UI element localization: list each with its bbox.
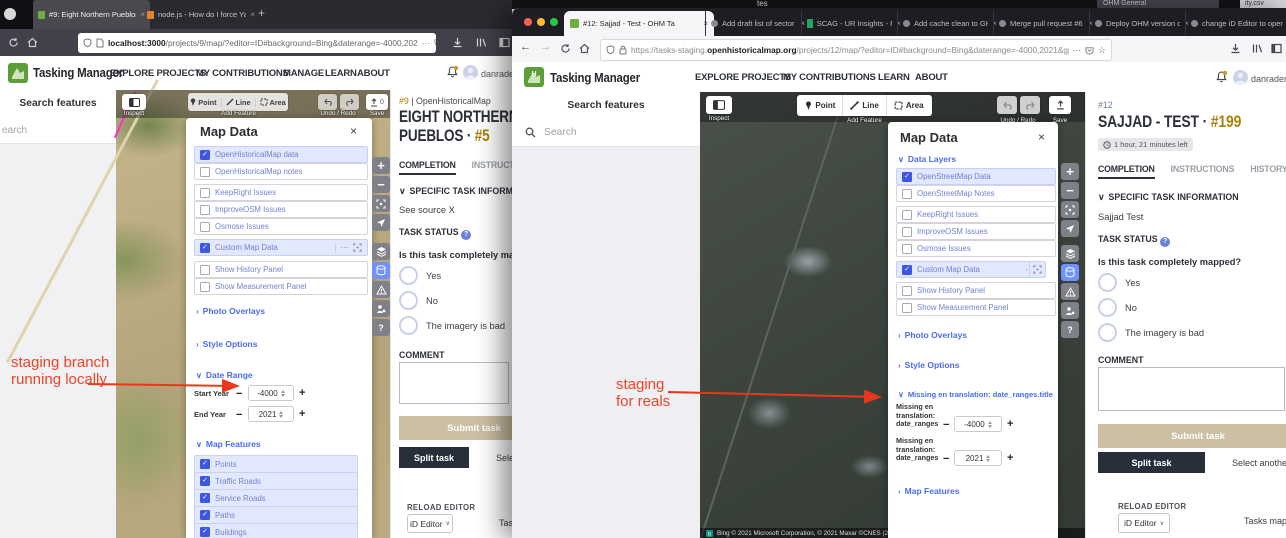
style-options-section[interactable]: ›Style Options: [196, 339, 257, 349]
annotation-left: staging branchrunning locally: [11, 355, 109, 388]
download-icon[interactable]: [452, 37, 463, 48]
checkbox-icon[interactable]: [200, 205, 210, 215]
issues-button[interactable]: [372, 281, 390, 298]
layer-row[interactable]: OpenStreetMap Notes: [896, 185, 1056, 202]
url-host: localhost:3000: [108, 38, 166, 48]
right-url-bar: ← → https://tasks-staging.openhistorical…: [512, 36, 1286, 63]
inspect-icon: [713, 100, 725, 110]
right-task-panel: #12 SAJJAD - TEST · #199 1 hour, 21 minu…: [1085, 92, 1286, 538]
pocket-icon[interactable]: [1085, 46, 1094, 55]
nav-learn[interactable]: LEARN: [325, 68, 357, 79]
right-id-toolbar: Inspect Point Line Area Add Feature Undo…: [700, 92, 1085, 122]
bell-icon[interactable]: [446, 65, 459, 79]
layer-row[interactable]: KeepRight Issues: [896, 206, 1056, 223]
inspect-button[interactable]: [706, 96, 732, 114]
end-year-input[interactable]: 2021: [954, 450, 1002, 466]
comment-textarea[interactable]: [399, 362, 509, 404]
comment-textarea[interactable]: [1098, 367, 1285, 411]
new-tab-icon[interactable]: +: [258, 6, 265, 20]
checkbox-checked-icon[interactable]: [200, 527, 210, 537]
redo-icon: [1025, 101, 1036, 110]
search-features-title: Search features: [567, 100, 644, 111]
undo-redo-label: Undo / Redo: [312, 110, 364, 117]
feature-row[interactable]: Traffic Roads: [195, 473, 357, 490]
stepper-icon[interactable]: [279, 411, 283, 418]
layer-row[interactable]: Osmose Issues: [194, 218, 368, 235]
github-favicon: [903, 20, 910, 27]
inspect-button[interactable]: [122, 94, 146, 110]
feature-row[interactable]: Service Roads: [195, 490, 357, 507]
radio-icon[interactable]: [399, 291, 418, 310]
submit-task-button[interactable]: Submit task: [399, 416, 512, 440]
help-circle-icon[interactable]: ?: [1160, 237, 1170, 247]
area-icon: [894, 101, 903, 110]
task-tabs: COMPLETION INSTRUCTIONS: [399, 160, 512, 175]
search-features-title: Search features: [19, 98, 96, 109]
undo-icon: [1002, 101, 1013, 110]
browser-tab[interactable]: Add cache clean to GH Acti ×: [897, 11, 1002, 36]
zoom-in-button[interactable]: +: [372, 157, 390, 174]
checkbox-icon[interactable]: [902, 286, 912, 296]
save-upload-icon: [370, 98, 378, 107]
zoom-to-task-button[interactable]: [372, 195, 390, 212]
attribution-text: Bing © 2021 Microsoft Corporation, © 202…: [717, 530, 901, 537]
area-button[interactable]: Area: [887, 95, 931, 116]
radio-icon[interactable]: [1098, 323, 1117, 342]
address-bar[interactable]: https://tasks-staging.openhistoricalmap.…: [600, 39, 1112, 61]
nav-about[interactable]: ABOUT: [357, 68, 390, 79]
line-icon: [850, 101, 859, 110]
comment-label: COMMENT: [399, 350, 444, 360]
option-no[interactable]: No: [1098, 298, 1137, 317]
preferences-button[interactable]: [1061, 302, 1079, 319]
tab-title: Add cache clean to GH Acti: [914, 19, 988, 28]
shield-icon[interactable]: [606, 45, 615, 55]
overflow-menu-icon[interactable]: ⋯: [422, 38, 430, 48]
preferences-button[interactable]: [372, 300, 390, 317]
warning-icon: [1065, 287, 1076, 297]
back-icon[interactable]: ←: [520, 41, 531, 53]
checkbox-icon[interactable]: [200, 265, 210, 275]
checkbox-icon[interactable]: [200, 167, 210, 177]
layer-row[interactable]: OpenHistoricalMap data: [194, 146, 368, 163]
point-icon: [190, 98, 196, 106]
specific-task-info-header[interactable]: ∨SPECIFIC TASK INFORMATION: [399, 186, 512, 197]
left-url-bar: localhost:3000/projects/9/map/?editor=ID…: [0, 29, 512, 56]
start-year-minus[interactable]: −: [236, 389, 242, 399]
radio-icon[interactable]: [399, 316, 418, 335]
start-year-plus[interactable]: +: [1007, 419, 1013, 429]
svg-text:H: H: [531, 71, 536, 78]
reload-icon[interactable]: [560, 43, 571, 54]
page-icon[interactable]: [96, 38, 104, 48]
layer-row-custom-map-data[interactable]: Custom Map Data⋯: [896, 261, 1039, 278]
home-icon[interactable]: [579, 43, 590, 54]
add-feature-group[interactable]: Point Line Area: [188, 93, 288, 111]
map-features-list: Points Traffic Roads Service Roads Paths…: [194, 455, 358, 538]
search-placeholder: Search: [544, 127, 577, 138]
checkbox-icon[interactable]: [200, 222, 210, 232]
feature-search-input[interactable]: Search: [512, 119, 713, 147]
backgrounds-button[interactable]: [372, 243, 390, 260]
comment-label: COMMENT: [1098, 355, 1143, 365]
line-button[interactable]: Line: [222, 98, 256, 107]
library-icon[interactable]: [476, 37, 487, 48]
checkbox-checked-icon[interactable]: [902, 265, 912, 275]
issues-button[interactable]: [1061, 283, 1079, 300]
date-range-section[interactable]: ∨Date Range: [196, 370, 253, 380]
checkbox-checked-icon[interactable]: [200, 243, 210, 253]
tasks-map-link[interactable]: Tasks map: [1244, 516, 1286, 526]
zoom-to-data-icon[interactable]: [353, 243, 362, 252]
ohm-favicon: [38, 11, 45, 19]
close-tab-icon[interactable]: ×: [250, 10, 255, 19]
left-task-panel: #9 | OpenHistoricalMap EIGHT NORTHERN PU…: [390, 90, 512, 538]
task-info-text: Sajjad Test: [1098, 212, 1143, 222]
option-yes[interactable]: Yes: [1098, 273, 1140, 292]
maximize-window-icon[interactable]: [550, 18, 558, 26]
github-favicon: [999, 20, 1006, 27]
zoom-to-custom-data-button[interactable]: [1029, 261, 1046, 278]
checkbox-icon[interactable]: [902, 244, 912, 254]
download-icon[interactable]: [1230, 43, 1241, 54]
geolocate-button[interactable]: [372, 214, 390, 231]
add-feature-group[interactable]: Point Line Area: [797, 95, 932, 116]
checkbox-icon[interactable]: [902, 227, 912, 237]
layer-row[interactable]: Show Measurement Panel: [896, 299, 1056, 316]
url-host: openhistoricalmap.org: [707, 45, 796, 55]
overflow-menu-icon[interactable]: ⋯: [1073, 45, 1081, 55]
search-text: earch: [2, 125, 27, 136]
stepper-icon[interactable]: [986, 455, 990, 462]
left-tab-bar: #9: Eight Northern Pueblos - T × node.js…: [0, 0, 512, 29]
tab-title: SCAG - UR Insights - Featu: [817, 19, 893, 28]
layer-row[interactable]: ImproveOSM Issues: [194, 201, 368, 218]
layer-row[interactable]: OpenStreetMap Data: [896, 168, 1056, 185]
feature-row[interactable]: Points: [195, 456, 357, 473]
end-year-minus[interactable]: −: [236, 410, 242, 420]
line-icon: [226, 98, 234, 106]
home-icon[interactable]: [27, 37, 38, 48]
save-button[interactable]: 0: [366, 94, 388, 110]
nav-explore-projects[interactable]: EXPLORE PROJECTS: [110, 68, 206, 79]
tab-title: change iD Editor to openhi: [1202, 19, 1283, 28]
tab-instructions[interactable]: INSTRUCTIONS: [1171, 164, 1235, 179]
start-year-minus[interactable]: −: [943, 420, 949, 430]
radio-icon[interactable]: [1098, 298, 1117, 317]
checkbox-icon[interactable]: [902, 303, 912, 313]
select-another-task-link[interactable]: Select another t: [1232, 458, 1286, 468]
data-layers-section[interactable]: ∨Data Layers: [898, 154, 956, 164]
tab-completion[interactable]: COMPLETION: [399, 160, 456, 175]
navigation-arrow-icon: [376, 218, 386, 228]
navigation-arrow-icon: [1065, 224, 1075, 234]
browser-tab-active[interactable]: #9: Eight Northern Pueblos - T ×: [33, 0, 150, 29]
option-no[interactable]: No: [399, 291, 438, 310]
chevron-down-icon: ∨: [446, 520, 450, 527]
zoom-to-data-icon: [1033, 265, 1042, 274]
nav-explore-projects[interactable]: EXPLORE PROJECTS: [695, 72, 791, 83]
right-browser-window: #12: Sajjad - Test - OHM Ta × Add draft …: [512, 8, 1286, 538]
nav-my-contributions[interactable]: MY CONTRIBUTIONS: [196, 68, 289, 79]
person-icon: [1233, 70, 1248, 85]
zoom-out-button[interactable]: −: [372, 176, 390, 193]
start-year-input[interactable]: -4000: [954, 416, 1002, 432]
reload-icon[interactable]: [8, 37, 19, 48]
shield-icon[interactable]: [83, 38, 92, 48]
inspect-label: Inspect: [703, 115, 735, 122]
split-task-button[interactable]: Split task: [399, 447, 469, 468]
point-button[interactable]: Point: [186, 98, 221, 107]
crosshair-frame-icon: [376, 199, 386, 209]
panel-title: Map Data: [900, 130, 958, 145]
tab-completion[interactable]: COMPLETION: [1098, 164, 1155, 179]
photo-overlays-section[interactable]: ›Photo Overlays: [196, 306, 265, 316]
task-question: Is this task completely mapped?: [1098, 257, 1241, 267]
traffic-light-icon[interactable]: [4, 8, 16, 20]
map-data-button-active[interactable]: [1061, 264, 1079, 281]
stepper-icon[interactable]: [281, 390, 285, 397]
save-upload-icon: [1056, 100, 1065, 110]
stepper-icon[interactable]: [988, 421, 992, 428]
inspect-icon: [129, 98, 140, 107]
browser-tab[interactable]: SCAG - UR Insights - Featu ×: [801, 11, 906, 36]
line-button[interactable]: Line: [843, 95, 886, 116]
person-icon: [463, 65, 478, 80]
area-icon: [260, 98, 268, 106]
start-year-input[interactable]: -4000: [248, 385, 294, 401]
missing-translation-section[interactable]: ∨Missing en translation: date_ranges.tit…: [898, 390, 1054, 399]
map-features-section[interactable]: ›Map Features: [898, 486, 959, 496]
undo-button[interactable]: [318, 94, 337, 110]
save-count: 0: [380, 99, 384, 106]
zoom-out-button[interactable]: −: [1061, 182, 1079, 199]
nav-learn[interactable]: LEARN: [878, 72, 910, 83]
tasks-map-link[interactable]: Tasks map: [499, 518, 512, 528]
redo-button[interactable]: [1020, 96, 1040, 114]
area-button[interactable]: Area: [256, 98, 290, 107]
end-year-plus[interactable]: +: [1007, 453, 1013, 463]
map-data-icon: [376, 265, 386, 276]
browser-tab[interactable]: Add draft list of sector type ×: [705, 11, 810, 36]
username[interactable]: danrade: [481, 69, 512, 79]
close-panel-icon[interactable]: ×: [1038, 130, 1045, 144]
redo-icon: [345, 98, 355, 106]
more-options-icon[interactable]: ⋯: [335, 243, 348, 252]
bookmark-star-icon[interactable]: ☆: [1098, 45, 1106, 56]
map-features-section[interactable]: ∨Map Features: [196, 439, 261, 449]
checkbox-checked-icon[interactable]: [200, 476, 210, 486]
specific-task-info-header[interactable]: ∨SPECIFIC TASK INFORMATION: [1098, 192, 1239, 203]
start-year-missing-label: Missing entranslation:date_ranges: [896, 403, 938, 429]
project-breadcrumb[interactable]: #9 | OpenHistoricalMap: [399, 96, 491, 106]
bing-logo: b: [706, 530, 713, 537]
feature-row[interactable]: Buildings: [195, 524, 357, 538]
browser-tab-active[interactable]: #12: Sajjad - Test - OHM Ta ×: [564, 11, 714, 36]
clock-icon: [1103, 141, 1111, 149]
user-settings-icon: [1065, 306, 1075, 316]
tab-history[interactable]: HISTORY: [1250, 164, 1286, 179]
undo-button[interactable]: [997, 96, 1017, 114]
checkbox-checked-icon[interactable]: [200, 493, 210, 503]
layer-row[interactable]: OpenHistoricalMap notes: [194, 163, 368, 180]
tasking-manager-logo[interactable]: [8, 63, 28, 83]
avatar[interactable]: [463, 65, 478, 80]
end-year-missing-label: Missing entranslation:date_ranges: [896, 437, 938, 463]
tab-title: Add draft list of sector type: [722, 19, 796, 28]
layer-row[interactable]: Show History Panel: [194, 261, 368, 278]
checkbox-icon[interactable]: [902, 189, 912, 199]
avatar[interactable]: [1233, 70, 1248, 85]
left-window-controls[interactable]: [0, 0, 33, 29]
layers-icon: [376, 246, 387, 257]
end-year-input[interactable]: 2021: [248, 406, 294, 422]
save-button[interactable]: [1049, 96, 1071, 114]
help-circle-icon[interactable]: ?: [461, 230, 471, 240]
left-id-sidebar: Search features earch: [0, 90, 117, 538]
layer-row-custom-map-data[interactable]: Custom Map Data⋯: [194, 239, 368, 256]
close-panel-icon[interactable]: ×: [350, 124, 357, 138]
left-app-header: Tasking Manager EXPLORE PROJECTS MY CONT…: [0, 56, 512, 91]
reload-editor-label: RELOAD EDITOR: [1118, 502, 1186, 511]
start-year-plus[interactable]: +: [299, 388, 305, 398]
nav-my-contributions[interactable]: MY CONTRIBUTIONS: [783, 72, 876, 83]
github-favicon: [1191, 20, 1198, 27]
editor-dropdown[interactable]: iD Editor∨: [1118, 513, 1170, 533]
left-browser-window: #9: Eight Northern Pueblos - T × node.js…: [0, 0, 512, 538]
map-data-button-active[interactable]: [372, 262, 390, 279]
checkbox-icon[interactable]: [200, 188, 210, 198]
point-icon: [805, 101, 812, 110]
pocket-icon[interactable]: [434, 38, 436, 47]
checkbox-checked-icon[interactable]: [200, 459, 210, 469]
submit-task-button[interactable]: Submit task: [1098, 424, 1286, 448]
url-path: /projects/12/map/?editor=ID#background=B…: [797, 45, 1069, 55]
zoom-in-button[interactable]: +: [1061, 163, 1079, 180]
layer-row[interactable]: Osmose Issues: [896, 240, 1056, 257]
sheets-favicon: [807, 19, 813, 28]
username[interactable]: danradema: [1251, 74, 1286, 84]
url-scheme: https://tasks-staging.: [631, 45, 707, 55]
save-label: Save: [362, 110, 392, 117]
option-yes[interactable]: Yes: [399, 266, 441, 285]
project-number[interactable]: #12: [1098, 100, 1113, 110]
geolocate-button[interactable]: [1061, 220, 1079, 237]
minimize-window-icon[interactable]: [537, 18, 545, 26]
browser-tab[interactable]: Merge pull request #6 from ×: [993, 11, 1098, 36]
add-feature-label: Add Feature: [211, 110, 266, 117]
close-window-icon[interactable]: [524, 18, 532, 26]
address-bar[interactable]: localhost:3000/projects/9/map/?editor=ID…: [78, 33, 436, 53]
tasking-manager-logo[interactable]: H: [524, 67, 544, 87]
backgrounds-button[interactable]: [1061, 245, 1079, 262]
layer-row[interactable]: KeepRight Issues: [194, 184, 368, 201]
style-options-section[interactable]: ›Style Options: [898, 360, 959, 370]
point-button[interactable]: Point: [798, 95, 843, 116]
time-left-badge: 1 hour, 21 minutes left: [1098, 138, 1193, 151]
nav-manage[interactable]: MANAGE: [283, 68, 324, 79]
right-map-data-panel: Map Data × ∨Data Layers OpenStreetMap Da…: [888, 122, 1058, 538]
browser-tab[interactable]: Deploy OHM version of iD i ×: [1089, 11, 1194, 36]
search-features-header: Search features: [512, 92, 700, 120]
right-tab-bar: #12: Sajjad - Test - OHM Ta × Add draft …: [512, 8, 1286, 36]
user-settings-icon: [376, 304, 386, 314]
forward-icon[interactable]: →: [540, 41, 551, 53]
sidebar-toggle-icon[interactable]: [1271, 43, 1282, 54]
photo-overlays-section[interactable]: ›Photo Overlays: [898, 330, 967, 340]
select-another-task-link[interactable]: Select another task: [496, 453, 512, 463]
task-info-text: See source X: [399, 205, 455, 215]
end-year-plus[interactable]: +: [299, 409, 305, 419]
crosshair-frame-icon: [1065, 205, 1075, 215]
left-id-toolbar: Inspect Point Line Area Add Feature Undo…: [116, 90, 390, 118]
option-imagery-bad[interactable]: The imagery is bad: [1098, 323, 1204, 342]
bell-icon[interactable]: [1215, 70, 1228, 84]
svg-text:b: b: [708, 531, 711, 536]
layer-row[interactable]: Show History Panel: [896, 282, 1056, 299]
help-button[interactable]: ?: [372, 319, 390, 336]
map-data-icon: [1065, 267, 1075, 278]
checkbox-icon[interactable]: [200, 282, 210, 292]
layer-row[interactable]: ImproveOSM Issues: [896, 223, 1056, 240]
nav-about[interactable]: ABOUT: [915, 72, 948, 83]
panel-title: Map Data: [200, 124, 258, 139]
lock-icon[interactable]: [619, 45, 627, 55]
street-line: [696, 93, 846, 538]
ohm-favicon: [570, 19, 579, 28]
tab-title: node.js - How do I force Yarn t: [158, 10, 246, 19]
checkbox-checked-icon[interactable]: [200, 510, 210, 520]
feature-search-input[interactable]: earch: [0, 117, 116, 144]
end-year-minus[interactable]: −: [943, 454, 949, 464]
browser-tab[interactable]: node.js - How do I force Yarn t ×: [142, 0, 260, 29]
end-year-label: End Year: [194, 410, 226, 419]
layer-row[interactable]: Show Measurement Panel: [194, 278, 368, 295]
help-button[interactable]: ?: [1061, 321, 1079, 338]
redo-button[interactable]: [340, 94, 359, 110]
task-question: Is this task completely mapped?: [399, 250, 512, 260]
github-favicon: [1095, 20, 1102, 27]
chevron-down-icon: ∨: [1160, 520, 1164, 527]
layers-icon: [1065, 248, 1076, 259]
stackoverflow-favicon: [147, 11, 154, 19]
tab-instructions[interactable]: INSTRUCTIONS: [472, 160, 512, 175]
radio-icon[interactable]: [1098, 273, 1117, 292]
checkbox-checked-icon[interactable]: [200, 150, 210, 160]
search-features-header: Search features: [0, 90, 116, 118]
zoom-to-task-button[interactable]: [1061, 201, 1079, 218]
right-app-header: H Tasking Manager EXPLORE PROJECTS MY CO…: [512, 62, 1286, 93]
url-path: /projects/9/map/?editor=ID#background=Bi…: [166, 38, 418, 48]
tab-title: #12: Sajjad - Test - OHM Ta: [583, 19, 675, 28]
checkbox-checked-icon[interactable]: [902, 172, 912, 182]
library-icon[interactable]: [1252, 43, 1263, 54]
radio-icon[interactable]: [399, 266, 418, 285]
feature-row[interactable]: Paths: [195, 507, 357, 524]
start-year-label: Start Year: [194, 389, 229, 398]
left-map-data-panel: Map Data × ∨Data Layers OpenHistoricalMa…: [186, 118, 372, 538]
editor-dropdown[interactable]: iD Editor∨: [407, 514, 453, 533]
sidebar-toggle-icon[interactable]: [499, 37, 510, 48]
option-imagery-bad[interactable]: The imagery is bad: [399, 316, 505, 335]
checkbox-icon[interactable]: [902, 210, 912, 220]
split-task-button[interactable]: Split task: [1098, 452, 1205, 473]
add-feature-label: Add Feature: [837, 117, 892, 124]
task-number: #5: [475, 127, 490, 145]
project-title: SAJJAD - TEST · #199: [1098, 112, 1241, 132]
brand-title[interactable]: Tasking Manager: [550, 70, 640, 85]
browser-tab[interactable]: change iD Editor to openhi ×: [1185, 11, 1286, 36]
